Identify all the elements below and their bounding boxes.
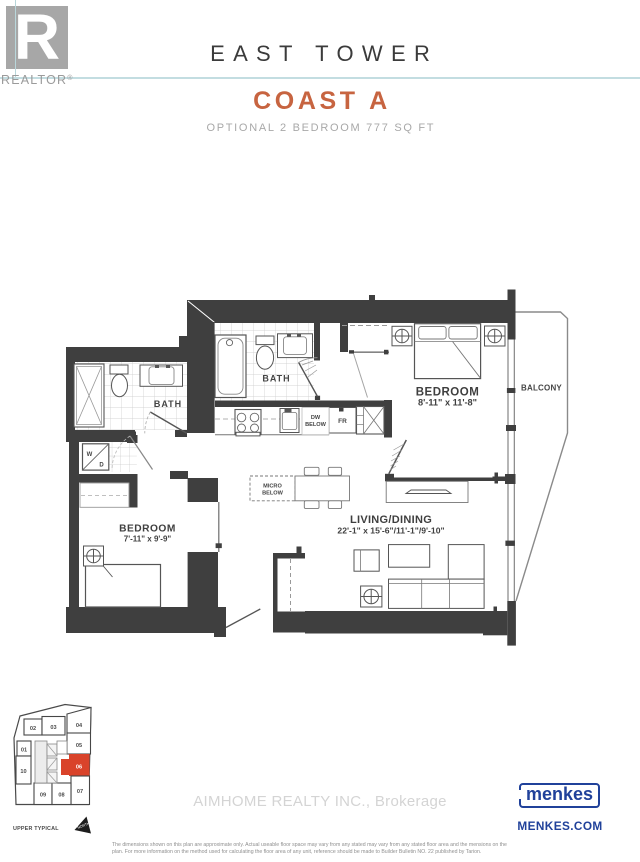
- svg-text:22'-1" x 15'-6"/11'-1"/9'-10": 22'-1" x 15'-6"/11'-1"/9'-10": [337, 526, 444, 536]
- svg-text:BATH: BATH: [154, 399, 182, 409]
- svg-text:D: D: [99, 463, 104, 469]
- svg-text:7'-11" x 9'-9": 7'-11" x 9'-9": [124, 535, 172, 544]
- svg-text:01: 01: [21, 748, 27, 754]
- svg-text:MICRO: MICRO: [263, 484, 282, 490]
- svg-text:06: 06: [76, 765, 82, 771]
- svg-text:BEDROOM: BEDROOM: [119, 524, 176, 535]
- svg-text:10: 10: [20, 769, 26, 775]
- svg-text:W: W: [87, 452, 93, 458]
- svg-text:03: 03: [50, 725, 56, 731]
- svg-text:05: 05: [76, 743, 82, 749]
- svg-text:LIVING/DINING: LIVING/DINING: [350, 514, 432, 526]
- svg-text:04: 04: [76, 723, 83, 729]
- svg-text:DW: DW: [311, 415, 321, 421]
- svg-text:BELOW: BELOW: [262, 491, 284, 497]
- svg-text:02: 02: [30, 726, 36, 732]
- svg-text:BELOW: BELOW: [305, 422, 327, 428]
- svg-text:FR: FR: [338, 418, 347, 425]
- svg-text:BALCONY: BALCONY: [521, 384, 562, 393]
- svg-text:BATH: BATH: [262, 374, 290, 384]
- svg-text:8'-11" x 11'-8": 8'-11" x 11'-8": [418, 398, 477, 408]
